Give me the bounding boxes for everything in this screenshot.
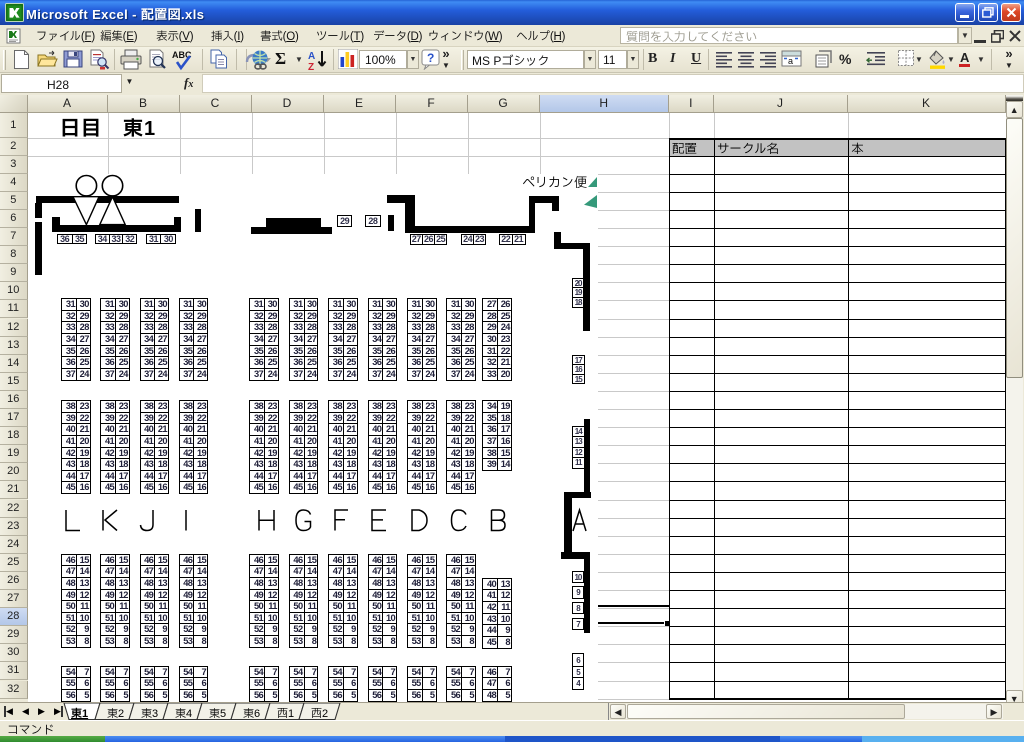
svg-text:a: a [788,56,793,66]
